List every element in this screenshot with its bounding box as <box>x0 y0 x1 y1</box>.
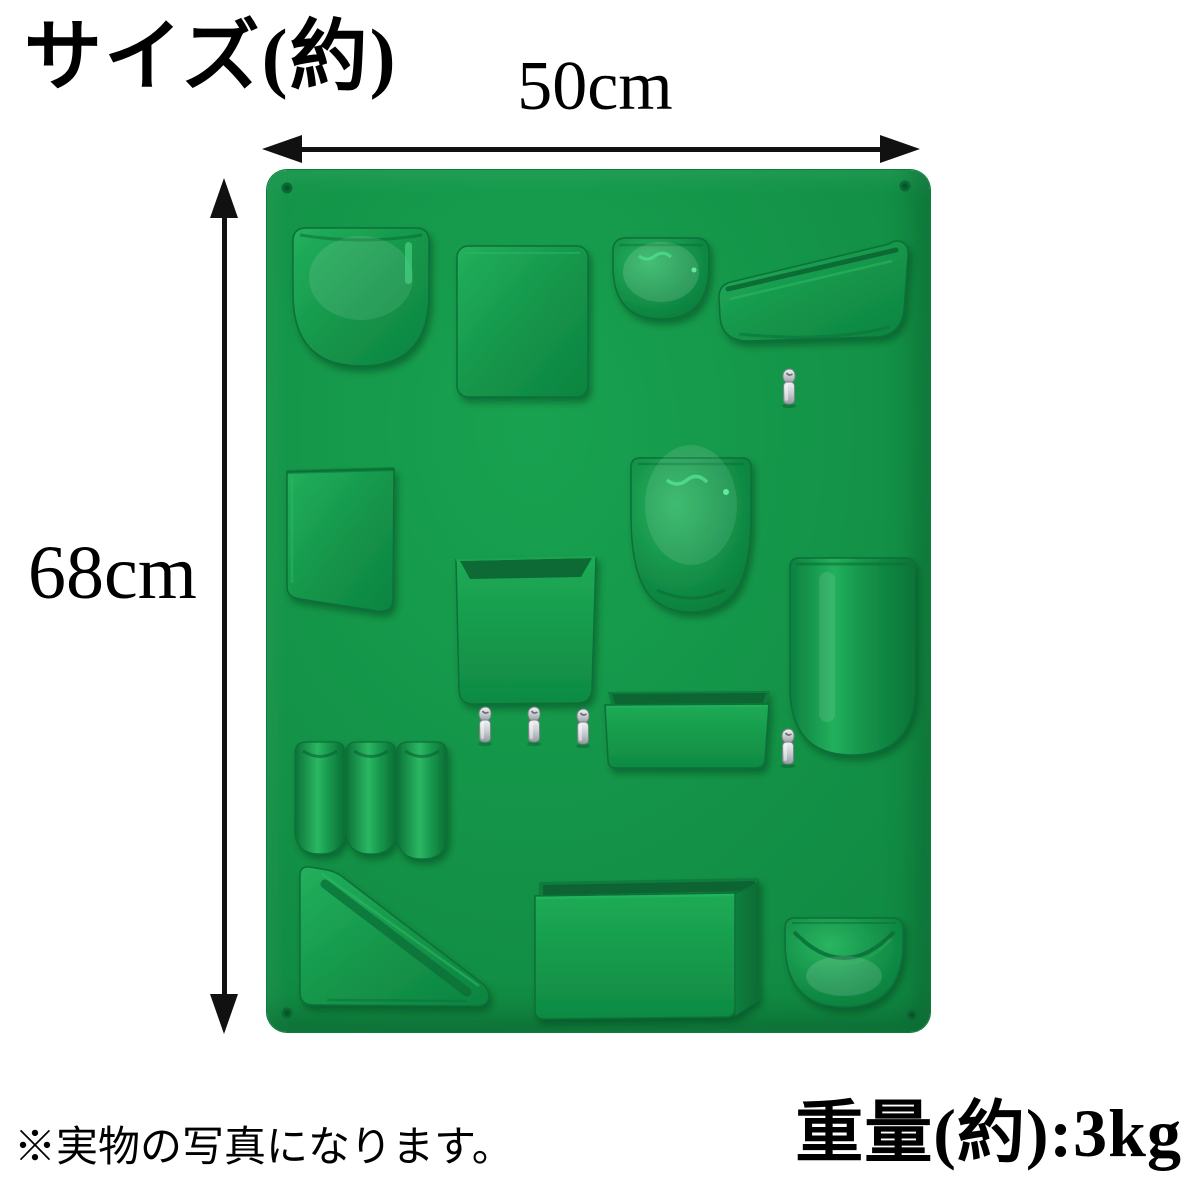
wedge-shelf <box>300 867 489 1006</box>
tall-u-pocket <box>790 558 915 755</box>
width-dimension-arrow <box>262 134 920 164</box>
wall-hook <box>576 709 590 748</box>
wall-hook <box>782 369 796 408</box>
organizer-board <box>267 170 930 1032</box>
product-dimension-figure: サイズ(約) 50cm 68cm ※実物の写真になります。 重量(約):3kg <box>0 0 1200 1200</box>
tube-pockets <box>295 742 447 859</box>
large-tray <box>535 878 759 1019</box>
photo-disclaimer-note: ※実物の写真になります。 <box>14 1126 514 1170</box>
arrow-line <box>222 204 227 1008</box>
small-dome-bowl <box>613 238 709 319</box>
arrow-down-icon <box>210 994 238 1034</box>
slant-bottom-pocket <box>287 469 394 611</box>
wall-hook <box>527 707 541 746</box>
egg-container <box>631 445 751 612</box>
organizer-photo <box>267 170 930 1032</box>
arrow-line <box>288 147 894 152</box>
angled-pen-tray <box>719 241 908 341</box>
size-title: サイズ(約) <box>24 16 398 98</box>
top-flap-box <box>457 246 588 397</box>
arrow-right-icon <box>880 135 920 163</box>
center-open-box <box>456 557 596 704</box>
width-dimension-label: 50cm <box>435 50 755 124</box>
top-left-u-pocket <box>293 228 429 366</box>
wall-hook <box>781 729 795 768</box>
height-dimension-arrow <box>209 178 239 1034</box>
height-dimension-label: 68cm <box>28 534 197 614</box>
half-round-bowl <box>785 918 903 1007</box>
weight-label: 重量(約):3kg <box>795 1098 1182 1169</box>
small-shelf-tray <box>605 691 770 768</box>
wall-hook <box>478 707 492 746</box>
